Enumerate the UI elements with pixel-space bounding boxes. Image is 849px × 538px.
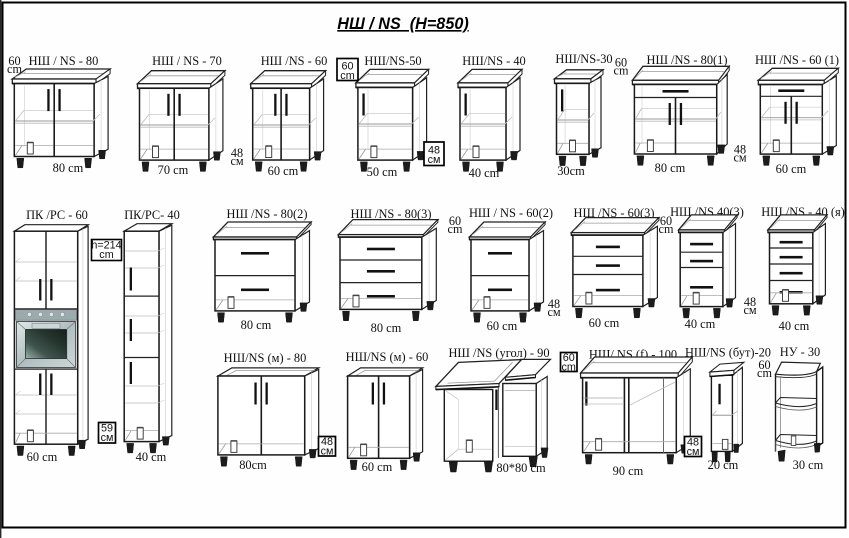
- svg-text:60 cm: 60 cm: [27, 450, 58, 464]
- svg-text:cm: cm: [561, 361, 575, 373]
- svg-text:ПК /РС - 60: ПК /РС - 60: [26, 208, 88, 222]
- svg-text:60 cm: 60 cm: [487, 319, 518, 333]
- svg-text:НШ / NS - 70: НШ / NS - 70: [152, 54, 222, 68]
- svg-text:30 cm: 30 cm: [793, 458, 824, 472]
- svg-text:НШ/NS (м) - 60: НШ/NS (м) - 60: [346, 350, 429, 364]
- svg-text:см: см: [101, 432, 114, 444]
- svg-text:НШ/NS - 40: НШ/NS - 40: [462, 54, 525, 68]
- svg-text:60 cm: 60 cm: [776, 162, 807, 176]
- svg-text:60 cm: 60 cm: [362, 460, 393, 474]
- svg-text:cm: cm: [614, 63, 629, 77]
- svg-text:см: см: [733, 150, 746, 164]
- svg-text:cm: cm: [99, 249, 113, 261]
- svg-text:cm: cm: [340, 70, 354, 82]
- svg-text:см: см: [321, 445, 334, 457]
- svg-text:см: см: [428, 154, 441, 166]
- svg-text:90 cm: 90 cm: [613, 464, 644, 478]
- svg-text:НШ /NS (угол) - 90: НШ /NS (угол) - 90: [448, 346, 549, 360]
- svg-text:НШ /NS - 60: НШ /NS - 60: [261, 54, 328, 68]
- svg-text:cm: cm: [659, 222, 674, 236]
- svg-text:cm: cm: [757, 366, 772, 380]
- svg-text:40 cm: 40 cm: [779, 319, 810, 333]
- svg-text:НШ /NS - 80(3): НШ /NS - 80(3): [351, 207, 432, 221]
- svg-text:40 cm: 40 cm: [136, 450, 167, 464]
- svg-text:60 cm: 60 cm: [589, 316, 620, 330]
- svg-text:НШ / NS - 60(2): НШ / NS - 60(2): [469, 206, 553, 220]
- svg-text:ПК/РС- 40: ПК/РС- 40: [124, 208, 180, 222]
- svg-text:НШ/NS-50: НШ/NS-50: [364, 54, 421, 68]
- svg-text:НШ /NS - 80(2): НШ /NS - 80(2): [227, 207, 308, 221]
- svg-text:НШ /NS - 60 (1): НШ /NS - 60 (1): [755, 53, 839, 67]
- svg-text:НШ/NS (м) - 80: НШ/NS (м) - 80: [224, 351, 307, 365]
- svg-text:80 cm: 80 cm: [241, 318, 272, 332]
- svg-text:НУ - 30: НУ - 30: [780, 345, 820, 359]
- svg-text:НШ / NS (Н=850): НШ / NS (Н=850): [337, 15, 468, 33]
- svg-text:40 cm: 40 cm: [685, 317, 716, 331]
- svg-text:см: см: [743, 303, 756, 317]
- svg-text:30cm: 30cm: [557, 164, 585, 178]
- svg-text:НШ/NS-30: НШ/NS-30: [555, 52, 612, 66]
- svg-text:70 cm: 70 cm: [158, 163, 189, 177]
- svg-text:80 cm: 80 cm: [371, 321, 402, 335]
- svg-text:см: см: [230, 154, 243, 168]
- svg-text:80 cm: 80 cm: [655, 161, 686, 175]
- svg-text:cm: cm: [448, 222, 463, 236]
- svg-text:НШ / NS - 80: НШ / NS - 80: [29, 54, 99, 68]
- svg-text:см: см: [547, 305, 560, 319]
- svg-text:50 cm: 50 cm: [367, 165, 398, 179]
- svg-text:80*80 cm: 80*80 cm: [496, 461, 546, 475]
- svg-text:см: см: [687, 446, 700, 458]
- svg-text:80cm: 80cm: [239, 458, 267, 472]
- svg-text:20 cm: 20 cm: [708, 458, 739, 472]
- svg-text:80 cm: 80 cm: [53, 161, 84, 175]
- svg-text:60 cm: 60 cm: [268, 164, 299, 178]
- svg-text:НШ /NS - 80(1): НШ /NS - 80(1): [647, 53, 728, 67]
- svg-text:40 cm: 40 cm: [469, 166, 500, 180]
